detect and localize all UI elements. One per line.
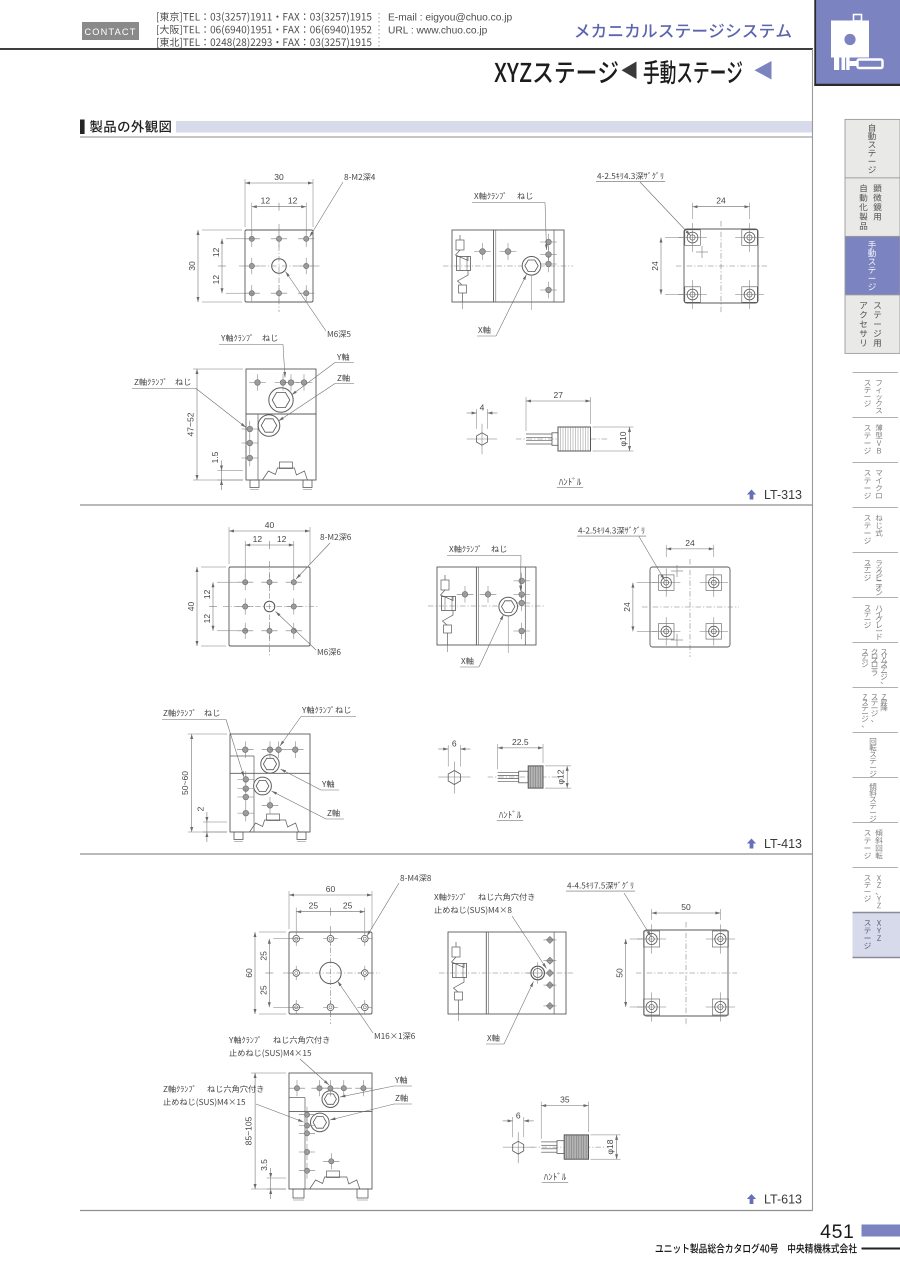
svg-text:LT-613: LT-613 xyxy=(764,1193,802,1207)
svg-text:47~52: 47~52 xyxy=(186,412,196,436)
svg-text:24: 24 xyxy=(685,538,695,548)
svg-text:12: 12 xyxy=(202,614,212,624)
svg-text:451: 451 xyxy=(820,1221,854,1243)
svg-text:27: 27 xyxy=(554,390,564,400)
svg-text:CONTACT: CONTACT xyxy=(84,27,136,37)
svg-text:LT-413: LT-413 xyxy=(764,837,802,851)
svg-text:24: 24 xyxy=(622,602,632,612)
svg-text:3.5: 3.5 xyxy=(259,1159,269,1171)
svg-text:30: 30 xyxy=(187,261,197,271)
svg-text:85~105: 85~105 xyxy=(244,1116,254,1145)
svg-text:1.5: 1.5 xyxy=(210,451,220,463)
svg-text:LT-313: LT-313 xyxy=(764,488,802,502)
svg-text:12: 12 xyxy=(277,534,287,544)
svg-text:22.5: 22.5 xyxy=(512,737,529,747)
svg-text:12: 12 xyxy=(202,589,212,599)
svg-text:12: 12 xyxy=(261,196,271,206)
svg-text:35: 35 xyxy=(560,1095,570,1105)
svg-text:E-mail : eigyou@chuo.co.jp: E-mail : eigyou@chuo.co.jp xyxy=(388,13,512,24)
svg-text:40: 40 xyxy=(265,520,275,530)
svg-text:φ12: φ12 xyxy=(556,769,566,784)
svg-text:2: 2 xyxy=(195,806,205,811)
svg-text:25: 25 xyxy=(343,901,353,911)
svg-text:24: 24 xyxy=(650,261,660,271)
svg-text:60: 60 xyxy=(244,968,254,978)
svg-text:12: 12 xyxy=(211,275,221,285)
svg-text:25: 25 xyxy=(258,951,268,961)
svg-text:50: 50 xyxy=(681,902,691,912)
svg-text:30: 30 xyxy=(274,172,284,182)
svg-text:60: 60 xyxy=(326,884,336,894)
svg-text:φ10: φ10 xyxy=(618,431,628,446)
svg-text:φ18: φ18 xyxy=(605,1139,615,1154)
svg-text:50~60: 50~60 xyxy=(180,771,190,795)
svg-text:24: 24 xyxy=(716,196,726,206)
svg-text:6: 6 xyxy=(516,1110,521,1120)
svg-text:6: 6 xyxy=(452,739,457,749)
svg-text:4: 4 xyxy=(480,403,485,413)
svg-text:12: 12 xyxy=(253,534,263,544)
svg-text:URL : www.chuo.co.jp: URL : www.chuo.co.jp xyxy=(388,25,488,36)
svg-text:25: 25 xyxy=(309,901,319,911)
svg-text:12: 12 xyxy=(288,196,298,206)
svg-text:40: 40 xyxy=(186,602,196,612)
svg-text:25: 25 xyxy=(258,985,268,995)
svg-text:50: 50 xyxy=(615,968,625,978)
svg-text:12: 12 xyxy=(211,247,221,257)
